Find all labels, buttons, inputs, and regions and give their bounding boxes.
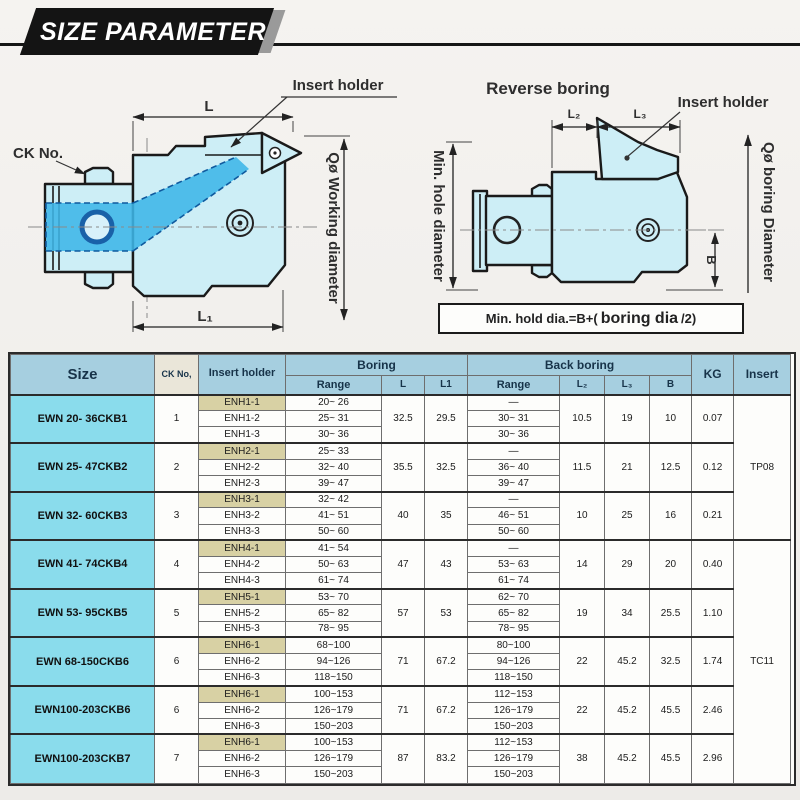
kg-cell: 2.96 xyxy=(692,734,734,783)
b-cell: 10 xyxy=(650,395,692,444)
dim-working-diameter: Qø Working diameter xyxy=(304,136,350,320)
holder-cell: ENH6-3 xyxy=(199,718,286,734)
svg-text:Insert holder: Insert holder xyxy=(678,94,769,111)
l3-cell: 45.2 xyxy=(605,637,650,686)
dim-min-hole: Min. hole diameter xyxy=(430,142,478,290)
size-cell: EWN 25- 47CKB2 xyxy=(11,443,155,492)
ck-cell: 6 xyxy=(155,637,199,686)
min-hold-formula: Min. hold dia.=B+( boring dia /2) xyxy=(438,303,744,334)
holder-cell: ENH5-1 xyxy=(199,589,286,605)
l-cell: 71 xyxy=(382,686,425,735)
b-cell: 12.5 xyxy=(650,443,692,492)
l2-cell: 19 xyxy=(560,589,605,638)
l1-cell: 83.2 xyxy=(425,734,468,783)
table-row: EWN 25- 47CKB22ENH2-125~ 3335.532.5—11.5… xyxy=(11,443,791,459)
l3-cell: 29 xyxy=(605,540,650,589)
dim-l2: L₂ xyxy=(552,107,597,168)
back-range-cell: 78~ 95 xyxy=(468,621,560,637)
l1-cell: 32.5 xyxy=(425,443,468,492)
boring-range-cell: 39~ 47 xyxy=(286,475,382,491)
table-row: EWN 53- 95CKB55ENH5-153~ 70575362~ 70193… xyxy=(11,589,791,605)
svg-text:L₂: L₂ xyxy=(568,107,581,121)
holder-cell: ENH1-3 xyxy=(199,427,286,443)
kg-cell: 1.10 xyxy=(692,589,734,638)
kg-cell: 2.46 xyxy=(692,686,734,735)
kg-cell: 0.40 xyxy=(692,540,734,589)
left-tool-drawing: L L₁ Qø Working diameter Insert holder C… xyxy=(0,60,420,350)
size-cell: EWN 20- 36CKB1 xyxy=(11,395,155,444)
back-range-cell: 126~179 xyxy=(468,702,560,718)
l2-cell: 22 xyxy=(560,637,605,686)
ck-cell: 4 xyxy=(155,540,199,589)
header-size: Size xyxy=(11,355,155,395)
boring-range-cell: 50~ 60 xyxy=(286,524,382,540)
b-cell: 32.5 xyxy=(650,637,692,686)
l3-cell: 45.2 xyxy=(605,686,650,735)
boring-range-cell: 78~ 95 xyxy=(286,621,382,637)
table-row: EWN 68-150CKB66ENH6-168~1007167.280~1002… xyxy=(11,637,791,653)
l2-cell: 11.5 xyxy=(560,443,605,492)
holder-cell: ENH2-1 xyxy=(199,443,286,459)
holder-cell: ENH4-2 xyxy=(199,556,286,572)
boring-range-cell: 68~100 xyxy=(286,637,382,653)
l3-cell: 19 xyxy=(605,395,650,444)
holder-cell: ENH6-1 xyxy=(199,637,286,653)
holder-cell: ENH2-3 xyxy=(199,475,286,491)
back-range-cell: 50~ 60 xyxy=(468,524,560,540)
boring-range-cell: 126~179 xyxy=(286,751,382,767)
svg-text:CK No.: CK No. xyxy=(13,145,63,162)
boring-diameter-label: Qø boring Diameter xyxy=(760,142,777,282)
size-cell: EWN100-203CKB7 xyxy=(11,734,155,783)
back-range-cell: — xyxy=(468,395,560,411)
l1-cell: 29.5 xyxy=(425,395,468,444)
holder-cell: ENH6-2 xyxy=(199,702,286,718)
boring-range-cell: 20~ 26 xyxy=(286,395,382,411)
l-cell: 47 xyxy=(382,540,425,589)
ck-no-label: CK No. xyxy=(13,145,85,174)
formula-mid: boring dia xyxy=(598,310,681,328)
boring-range-cell: 100~153 xyxy=(286,686,382,702)
holder-cell: ENH2-2 xyxy=(199,459,286,475)
ck-cell: 1 xyxy=(155,395,199,444)
l-cell: 87 xyxy=(382,734,425,783)
back-range-cell: 65~ 82 xyxy=(468,605,560,621)
boring-range-cell: 118~150 xyxy=(286,670,382,686)
header-l1: L1 xyxy=(425,376,468,395)
insert-type-cell: TP08 xyxy=(734,395,791,541)
header-l: L xyxy=(382,376,425,395)
b-cell: 25.5 xyxy=(650,589,692,638)
header-l3: L₃ xyxy=(605,376,650,395)
holder-cell: ENH4-3 xyxy=(199,573,286,589)
dim-l-label: L xyxy=(204,98,213,115)
holder-cell: ENH6-3 xyxy=(199,670,286,686)
holder-cell: ENH1-2 xyxy=(199,411,286,427)
boring-range-cell: 41~ 51 xyxy=(286,508,382,524)
back-range-cell: 112~153 xyxy=(468,734,560,750)
back-range-cell: 46~ 51 xyxy=(468,508,560,524)
l-cell: 57 xyxy=(382,589,425,638)
page-title: SIZE PARAMETER xyxy=(40,18,258,47)
ck-cell: 5 xyxy=(155,589,199,638)
boring-range-cell: 150~203 xyxy=(286,767,382,783)
size-cell: EWN 53- 95CKB5 xyxy=(11,589,155,638)
kg-cell: 0.07 xyxy=(692,395,734,444)
header-back-boring: Back boring xyxy=(468,355,692,376)
l1-cell: 35 xyxy=(425,492,468,541)
table-header: Size CK No, Insert holder Boring Back bo… xyxy=(11,355,791,395)
left-tool-diagram: L L₁ Qø Working diameter Insert holder C… xyxy=(0,60,420,350)
header-insert-holder: Insert holder xyxy=(199,355,286,395)
l3-cell: 21 xyxy=(605,443,650,492)
l-cell: 35.5 xyxy=(382,443,425,492)
ck-cell: 6 xyxy=(155,686,199,735)
header-l2: L₂ xyxy=(560,376,605,395)
dim-b-label: B xyxy=(704,255,719,264)
boring-range-cell: 50~ 63 xyxy=(286,556,382,572)
header-ck-no: CK No, xyxy=(155,355,199,395)
holder-cell: ENH6-2 xyxy=(199,654,286,670)
header-boring: Boring xyxy=(286,355,468,376)
right-tool-diagram: Reverse boring Insert holder L₂ L₃ Min. … xyxy=(420,60,800,350)
l1-cell: 43 xyxy=(425,540,468,589)
formula-prefix: Min. hold dia.=B+( xyxy=(486,311,598,326)
boring-range-cell: 94~126 xyxy=(286,654,382,670)
l-cell: 40 xyxy=(382,492,425,541)
l3-cell: 34 xyxy=(605,589,650,638)
back-range-cell: 61~ 74 xyxy=(468,573,560,589)
back-range-cell: 62~ 70 xyxy=(468,589,560,605)
l3-cell: 25 xyxy=(605,492,650,541)
l-cell: 71 xyxy=(382,637,425,686)
holder-cell: ENH6-3 xyxy=(199,767,286,783)
l2-cell: 10.5 xyxy=(560,395,605,444)
boring-range-cell: 150~203 xyxy=(286,718,382,734)
body-screw-circle xyxy=(227,210,253,236)
ck-cell: 3 xyxy=(155,492,199,541)
dim-l1-label: L₁ xyxy=(197,308,212,325)
holder-cell: ENH5-3 xyxy=(199,621,286,637)
l-cell: 32.5 xyxy=(382,395,425,444)
size-cell: EWN100-203CKB6 xyxy=(11,686,155,735)
header-insert: Insert xyxy=(734,355,791,395)
size-cell: EWN 41- 74CKB4 xyxy=(11,540,155,589)
reverse-boring-title: Reverse boring xyxy=(486,79,610,98)
boring-range-cell: 100~153 xyxy=(286,734,382,750)
boring-range-cell: 65~ 82 xyxy=(286,605,382,621)
l1-cell: 67.2 xyxy=(425,686,468,735)
back-range-cell: 126~179 xyxy=(468,751,560,767)
b-cell: 45.5 xyxy=(650,686,692,735)
holder-cell: ENH5-2 xyxy=(199,605,286,621)
boring-range-cell: 53~ 70 xyxy=(286,589,382,605)
svg-text:Insert holder: Insert holder xyxy=(293,77,384,94)
holder-cell: ENH3-1 xyxy=(199,492,286,508)
l2-cell: 14 xyxy=(560,540,605,589)
table-row: EWN100-203CKB77ENH6-1100~1538783.2112~15… xyxy=(11,734,791,750)
boring-range-cell: 30~ 36 xyxy=(286,427,382,443)
boring-range-cell: 32~ 42 xyxy=(286,492,382,508)
table-row: EWN 20- 36CKB11ENH1-120~ 2632.529.5—10.5… xyxy=(11,395,791,411)
table-row: EWN100-203CKB66ENH6-1100~1537167.2112~15… xyxy=(11,686,791,702)
back-range-cell: 39~ 47 xyxy=(468,475,560,491)
back-range-cell: 30~ 36 xyxy=(468,427,560,443)
back-range-cell: 94~126 xyxy=(468,654,560,670)
svg-text:L₃: L₃ xyxy=(634,107,647,121)
kg-cell: 0.12 xyxy=(692,443,734,492)
holder-cell: ENH3-3 xyxy=(199,524,286,540)
back-range-cell: 118~150 xyxy=(468,670,560,686)
b-cell: 16 xyxy=(650,492,692,541)
l2-cell: 22 xyxy=(560,686,605,735)
header-back-range: Range xyxy=(468,376,560,395)
holder-cell: ENH6-1 xyxy=(199,734,286,750)
l3-cell: 45.2 xyxy=(605,734,650,783)
back-range-cell: — xyxy=(468,540,560,556)
holder-cell: ENH6-2 xyxy=(199,751,286,767)
back-range-cell: 53~ 63 xyxy=(468,556,560,572)
holder-cell: ENH4-1 xyxy=(199,540,286,556)
holder-cell: ENH1-1 xyxy=(199,395,286,411)
boring-range-cell: 61~ 74 xyxy=(286,573,382,589)
header-kg: KG xyxy=(692,355,734,395)
back-range-cell: 150~203 xyxy=(468,767,560,783)
boring-range-cell: 126~179 xyxy=(286,702,382,718)
back-range-cell: — xyxy=(468,492,560,508)
back-range-cell: 150~203 xyxy=(468,718,560,734)
insert-type-cell: TC11 xyxy=(734,540,791,783)
holder-cell: ENH6-1 xyxy=(199,686,286,702)
dim-boring-diameter: Qø boring Diameter xyxy=(748,135,777,293)
header-boring-range: Range xyxy=(286,376,382,395)
back-range-cell: 36~ 40 xyxy=(468,459,560,475)
back-range-cell: 30~ 31 xyxy=(468,411,560,427)
header-b: B xyxy=(650,376,692,395)
spec-table-body: EWN 20- 36CKB11ENH1-120~ 2632.529.5—10.5… xyxy=(11,395,791,784)
size-parameter-table: Size CK No, Insert holder Boring Back bo… xyxy=(8,352,796,786)
boring-range-cell: 25~ 33 xyxy=(286,443,382,459)
boring-range-cell: 41~ 54 xyxy=(286,540,382,556)
ck-cell: 7 xyxy=(155,734,199,783)
min-hole-diameter-label: Min. hole diameter xyxy=(430,150,447,282)
ck-cell: 2 xyxy=(155,443,199,492)
l1-cell: 67.2 xyxy=(425,637,468,686)
size-cell: EWN 68-150CKB6 xyxy=(11,637,155,686)
b-cell: 20 xyxy=(650,540,692,589)
right-body xyxy=(552,170,687,282)
formula-suffix: /2) xyxy=(681,311,696,326)
working-diameter-label: Qø Working diameter xyxy=(325,152,342,304)
back-range-cell: 80~100 xyxy=(468,637,560,653)
boring-range-cell: 32~ 40 xyxy=(286,459,382,475)
boring-range-cell: 25~ 31 xyxy=(286,411,382,427)
back-range-cell: — xyxy=(468,443,560,459)
back-range-cell: 112~153 xyxy=(468,686,560,702)
b-cell: 45.5 xyxy=(650,734,692,783)
l2-cell: 10 xyxy=(560,492,605,541)
kg-cell: 1.74 xyxy=(692,637,734,686)
table-row: EWN 41- 74CKB44ENH4-141~ 544743—1429200.… xyxy=(11,540,791,556)
kg-cell: 0.21 xyxy=(692,492,734,541)
size-cell: EWN 32- 60CKB3 xyxy=(11,492,155,541)
holder-cell: ENH3-2 xyxy=(199,508,286,524)
table-row: EWN 32- 60CKB33ENH3-132~ 424035—1025160.… xyxy=(11,492,791,508)
l2-cell: 38 xyxy=(560,734,605,783)
l1-cell: 53 xyxy=(425,589,468,638)
